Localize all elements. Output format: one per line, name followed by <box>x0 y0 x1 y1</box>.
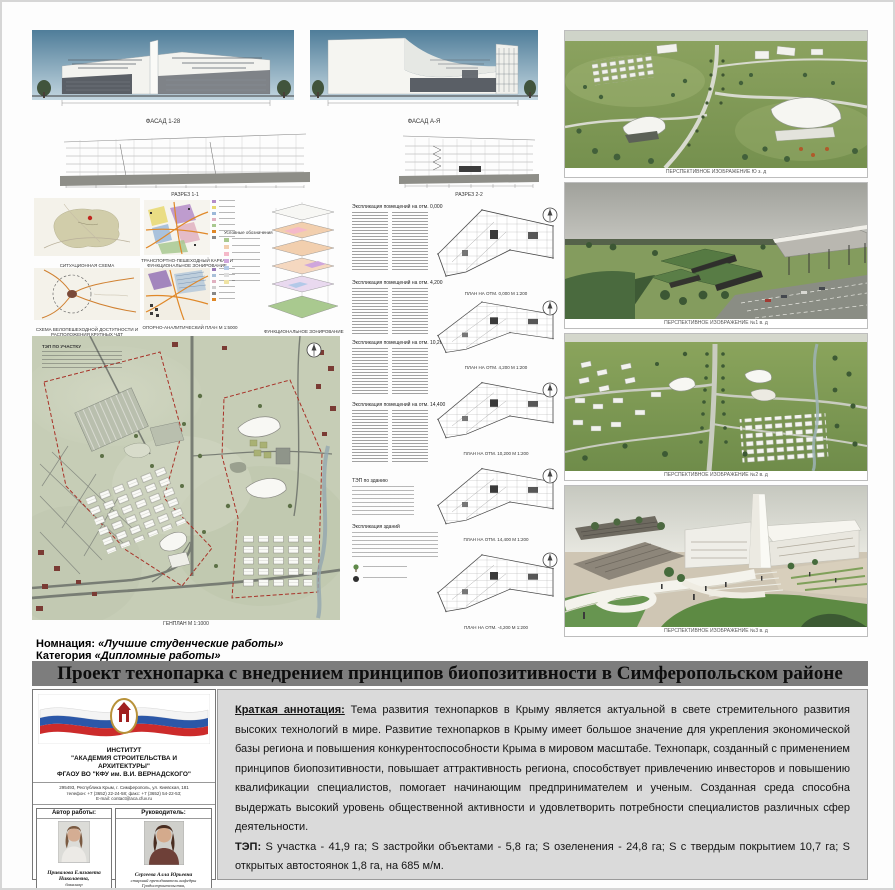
floor-plan-2: ПЛАН НА ОТМ. 4,200 М 1:200 <box>432 296 560 370</box>
institute-name-line-4: ФГАОУ ВО "КФУ им. В.И. ВЕРНАДСКОГО" <box>33 771 215 779</box>
floor-plan-3: ПЛАН НА ОТМ. 10,200 М 1:200 <box>432 376 560 456</box>
institute-name-line-3: АРХИТЕКТУРЫ" <box>33 763 215 771</box>
marker-icon <box>352 575 360 583</box>
floor-plan-image <box>432 548 558 620</box>
perspective-render-1: ПЕРСПЕКТИВНОЕ ИЗОБРАЖЕНИЕ Ю з. д <box>564 30 868 178</box>
legend-swatch <box>212 298 216 301</box>
render-3-caption: ПЕРСПЕКТИВНОЕ ИЗОБРАЖЕНИЕ №2 в. д <box>565 471 867 480</box>
table-title: Экспликация помещений на отм. 14,400 <box>352 402 428 408</box>
annotation-panel: Краткая аннотация: Тема развития технопа… <box>217 689 868 880</box>
floor-plan-image <box>432 202 558 286</box>
facade-drawing-2: ФАСАД А-Я <box>310 30 538 126</box>
analytical-map-image <box>144 268 210 320</box>
tep-label: ТЭП: <box>235 841 261 853</box>
supervisor-photo <box>144 821 184 865</box>
analytical-plan-scheme <box>144 268 236 330</box>
floor-plan-image <box>432 296 558 360</box>
legend-swatch <box>212 200 216 203</box>
legend-swatch <box>212 224 216 227</box>
perspective-render-3: ПЕРСПЕКТИВНОЕ ИЗОБРАЖЕНИЕ №2 в. д <box>564 333 868 481</box>
render-entrance-image <box>565 486 867 627</box>
accessibility-map-image <box>34 268 140 320</box>
author-email: emilie2000@mail.ru <box>37 887 111 890</box>
facade-2-label: ФАСАД А-Я <box>310 119 538 126</box>
floor-plan-image <box>432 376 558 446</box>
legend-swatch <box>224 259 229 263</box>
north-arrow-icon <box>542 468 558 484</box>
legend-swatch <box>212 206 216 209</box>
flag-emblem-image <box>38 694 210 744</box>
author-photo <box>58 821 90 863</box>
tep-body: S участка - 41,9 га; S застройки объекта… <box>235 841 850 873</box>
nomination-value: «Лучшие студенческие работы» <box>98 638 283 650</box>
floor-plan-1: ПЛАН НА ОТМ. 0,000 М 1:200 <box>432 202 560 292</box>
legend-swatch <box>224 266 229 270</box>
room-schedule-table-4: Экспликация помещений на отм. 14,400 <box>352 402 428 464</box>
facade-drawing-1: ФАСАД 1-28 <box>32 30 294 126</box>
render-greenroof-image <box>565 183 867 319</box>
north-arrow-icon <box>542 382 558 398</box>
situational-map-image <box>34 198 140 256</box>
room-schedule-table-3: Экспликация помещений на отм. 10,200 <box>352 340 428 396</box>
floor-plan-caption: ПЛАН НА ОТМ. -4,200 М 1:200 <box>432 625 560 630</box>
author-name: Привалова Елизавета Николаевна, <box>37 870 111 882</box>
north-arrow-icon <box>542 207 558 223</box>
render-1-caption: ПЕРСПЕКТИВНОЕ ИЗОБРАЖЕНИЕ Ю з. д <box>565 168 867 177</box>
legend-swatch <box>212 230 216 233</box>
masterplan-image <box>32 336 340 620</box>
masterplan-tep-title: ТЭП ПО УЧАСТКУ <box>42 344 128 349</box>
masterplan: ТЭП ПО УЧАСТКУ ГЕНПЛАН М 1:1000 <box>32 336 340 628</box>
nomination-line: Номнация: «Лучшие студенческие работы» <box>36 638 283 650</box>
tree-icon <box>352 564 360 572</box>
legend-swatch <box>224 273 229 277</box>
nomination-label: Номнация: <box>36 638 95 650</box>
facade-2-image <box>310 30 538 108</box>
institute-name-line-1: ИНСТИТУТ <box>33 747 215 755</box>
floor-plan-caption: ПЛАН НА ОТМ. 14,400 М 1:200 <box>432 537 560 542</box>
legend-swatch <box>212 268 216 271</box>
supervisor-label: Руководитель: <box>116 809 211 819</box>
render-valley-image <box>565 334 867 471</box>
institute-name-line-2: "АКАДЕМИЯ СТРОИТЕЛЬСТВА И <box>33 755 215 763</box>
facade-1-label: ФАСАД 1-28 <box>32 119 294 126</box>
annotation-body: Тема развития технопарков в Крыму являет… <box>235 704 850 833</box>
author-card: Автор работы: Привалова Елизавета Никола… <box>36 808 112 890</box>
building-tep-block: ТЭП по зданию <box>352 478 422 520</box>
section-drawing-2: РАЗРЕЗ 2-2 <box>399 130 539 194</box>
north-arrow-icon <box>542 300 558 316</box>
poster-board: ФАСАД 1-28 ФАСАД А-Я <box>0 0 895 890</box>
transport-map-image <box>144 200 210 255</box>
functional-zoning-axonometric: ФУНКЦИОНАЛЬНОЕ ЗОНИРОВАНИЕ <box>264 200 340 332</box>
floor-plan-caption: ПЛАН НА ОТМ. 4,200 М 1:200 <box>432 365 560 370</box>
legend-swatch <box>212 280 216 283</box>
north-arrow-icon <box>542 552 558 568</box>
table-title: Экспликация помещений на отм. 0,000 <box>352 204 428 210</box>
legend-swatch <box>212 236 216 239</box>
facade-1-image <box>32 30 294 108</box>
legend-swatch <box>224 245 229 249</box>
transport-zoning-scheme <box>144 200 236 266</box>
legend-swatch <box>212 212 216 215</box>
axonometric-image <box>264 200 340 324</box>
render-aerial-image <box>565 31 867 168</box>
room-schedule-table-1: Экспликация помещений на отм. 0,000 <box>352 204 428 274</box>
table-title: Экспликация помещений на отм. 10,200 <box>352 340 428 346</box>
masterplan-tep-block: ТЭП ПО УЧАСТКУ <box>42 344 128 369</box>
perspective-render-2: ПЕРСПЕКТИВНОЕ ИЗОБРАЖЕНИЕ №1 в. д <box>564 182 868 329</box>
section-drawing-1: РАЗРЕЗ 1-1 <box>60 130 310 194</box>
floor-plan-5: ПЛАН НА ОТМ. -4,200 М 1:200 <box>432 548 560 630</box>
functional-zoning-legend: Условные обозначения <box>224 230 266 287</box>
legend-swatch <box>212 292 216 295</box>
institute-email: E-mail: contact@aca.cfuv.ru <box>35 796 213 802</box>
legend-swatch <box>224 280 229 284</box>
supervisor-card: Руководитель: Сергеева Алла Юрьевна стар… <box>115 808 212 890</box>
functional-zoning-caption: ФУНКЦИОНАЛЬНОЕ ЗОНИРОВАНИЕ <box>264 329 340 334</box>
analytical-scheme-caption: ОПОРНО-АНАЛИТИЧЕСКИЙ ПЛАН М 1:5000 <box>130 325 250 330</box>
floor-plan-caption: ПЛАН НА ОТМ. 10,200 М 1:200 <box>432 451 560 456</box>
masterplan-caption: ГЕНПЛАН М 1:1000 <box>32 622 340 628</box>
section-2-label: РАЗРЕЗ 2-2 <box>399 193 539 199</box>
situational-scheme: СИТУАЦИОННАЯ СХЕМА <box>34 198 140 264</box>
legend-title: Условные обозначения <box>224 230 266 235</box>
institute-address: 295493, Республика Крым, г. Симферополь,… <box>35 785 213 791</box>
supervisor-role: старший преподаватель кафедры Градострои… <box>116 878 211 888</box>
project-title: Проект технопарка с внедрением принципов… <box>57 663 843 685</box>
project-title-bar: Проект технопарка с внедрением принципов… <box>32 661 868 686</box>
table-title: Экспликация помещений на отм. 4,200 <box>352 280 428 286</box>
institute-card: ИНСТИТУТ "АКАДЕМИЯ СТРОИТЕЛЬСТВА И АРХИТ… <box>32 689 216 880</box>
room-schedule-table-2: Экспликация помещений на отм. 4,200 <box>352 280 428 336</box>
tep-line: ТЭП: S участка - 41,9 га; S застройки об… <box>235 838 850 877</box>
floor-plan-4: ПЛАН НА ОТМ. 14,400 М 1:200 <box>432 462 560 542</box>
accessibility-scheme: СХЕМА ВЕЛОПЕШЕХОДНОЙ ДОСТУПНОСТИ И РАСПО… <box>34 268 140 334</box>
perspective-render-4: ПЕРСПЕКТИВНОЕ ИЗОБРАЖЕНИЕ №3 в. д <box>564 485 868 637</box>
plan-legend <box>352 564 422 586</box>
building-explication-block: Экспликация зданий <box>352 524 444 560</box>
floor-plan-image <box>432 462 558 532</box>
annotation-label: Краткая аннотация: <box>235 704 345 716</box>
legend-swatch <box>224 238 229 242</box>
render-4-caption: ПЕРСПЕКТИВНОЕ ИЗОБРАЖЕНИЕ №3 в. д <box>565 627 867 636</box>
building-tep-title: ТЭП по зданию <box>352 478 422 484</box>
legend-swatch <box>224 252 229 256</box>
render-2-caption: ПЕРСПЕКТИВНОЕ ИЗОБРАЖЕНИЕ №1 в. д <box>565 319 867 328</box>
explication-title: Экспликация зданий <box>352 524 444 530</box>
legend-swatch <box>212 274 216 277</box>
author-label: Автор работы: <box>37 809 111 819</box>
legend-swatch <box>212 286 216 289</box>
legend-swatch <box>212 218 216 221</box>
